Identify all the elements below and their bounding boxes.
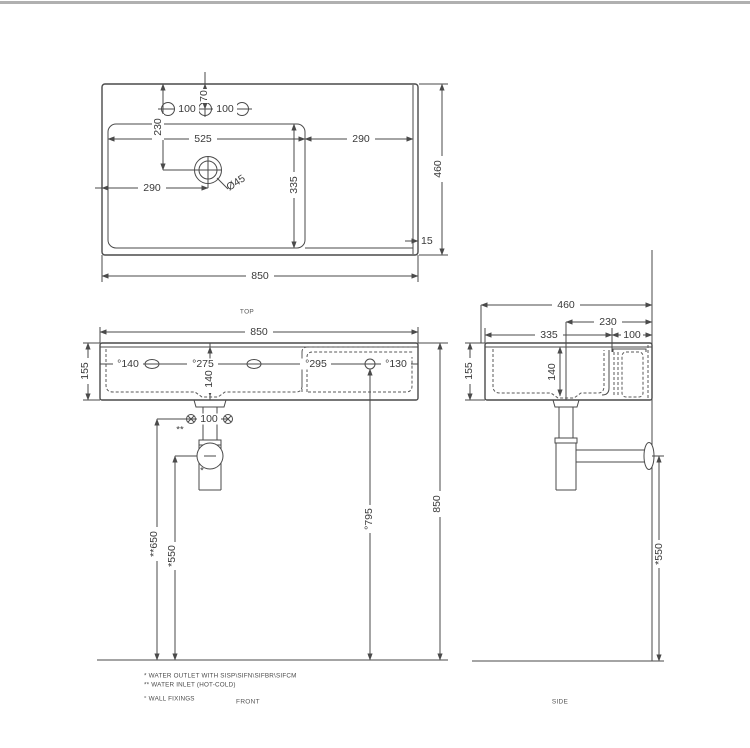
front-view-linework [83,327,448,660]
dim-top-overall-width: 850 [251,270,269,282]
dim-top-bowl-depth: 335 [288,176,300,194]
dim-front-fix-pitch-left: °275 [192,358,214,370]
dim-front-outlet-height: *550 [166,545,178,567]
dim-side-deck-depth: 100 [623,329,641,341]
dimension-labels: 70 100 100 230 525 290 290 Ø45 335 460 1… [79,90,665,705]
front-drain-flange [194,400,226,407]
side-drain-flange [553,400,579,407]
top-view-body-outline [102,84,418,255]
legend-water-outlet: * WATER OUTLET WITH SISP\SIFN\SIFBR\SIFC… [144,673,297,680]
dim-front-drain-drop: 140 [203,370,215,388]
dim-top-deck-width: 290 [352,133,370,145]
dim-top-tap-pitch-right: 100 [216,103,234,115]
legend-water-inlet: ** WATER INLET (HOT-COLD) [144,682,236,689]
dim-front-inlet-height: **650 [148,531,160,557]
dim-side-bowl-depth: 335 [540,329,558,341]
side-deck-recess-edge [613,349,646,352]
dim-front-overall-width: 850 [250,326,268,338]
dim-top-drain-from-rear: 230 [152,118,164,136]
dim-side-height: 155 [463,362,475,380]
dim-front-inlet-pitch: 100 [200,413,218,425]
dim-front-overall-height: 850 [431,495,443,513]
top-view-label: TOP [240,309,254,316]
dim-top-bowl-width: 525 [194,133,212,145]
side-hidden-deck-channel [622,352,643,397]
dim-top-tap-pitch-left: 100 [178,103,196,115]
side-view-linework [465,250,664,661]
dim-top-drain-diameter: Ø45 [224,172,247,193]
drawing-svg: 70 100 100 230 525 290 290 Ø45 335 460 1… [0,0,750,748]
dim-top-rim: 15 [421,235,433,247]
legend-wall-fixings: ° WALL FIXINGS [144,695,195,703]
side-view-label: SIDE [552,699,569,706]
dim-top-drain-from-left: 290 [143,182,161,194]
side-bowl-rear-wall [602,350,609,395]
dim-top-overall-depth: 460 [432,160,444,178]
dim-top-tap-offset: 70 [198,90,210,102]
dim-front-fix-left: °140 [117,358,139,370]
dim-front-fix-right: °130 [385,358,407,370]
dim-front-fix-pitch-right: °295 [305,358,327,370]
sink-technical-drawing: 70 100 100 230 525 290 290 Ø45 335 460 1… [0,0,750,748]
dim-side-drain-from-wall: 230 [599,316,617,328]
front-outlet-marker: * [200,466,204,477]
dim-side-outlet-height: *550 [653,543,665,565]
front-view-label: FRONT [236,699,260,706]
top-view-linework [95,72,448,282]
label-backgrounds [79,89,665,570]
front-inlet-marker: ** [176,425,184,436]
dim-front-fix-height: °795 [363,508,375,530]
dim-front-height: 155 [79,362,91,380]
dim-side-drain-drop: 140 [546,363,558,381]
dim-side-overall-depth: 460 [557,299,575,311]
